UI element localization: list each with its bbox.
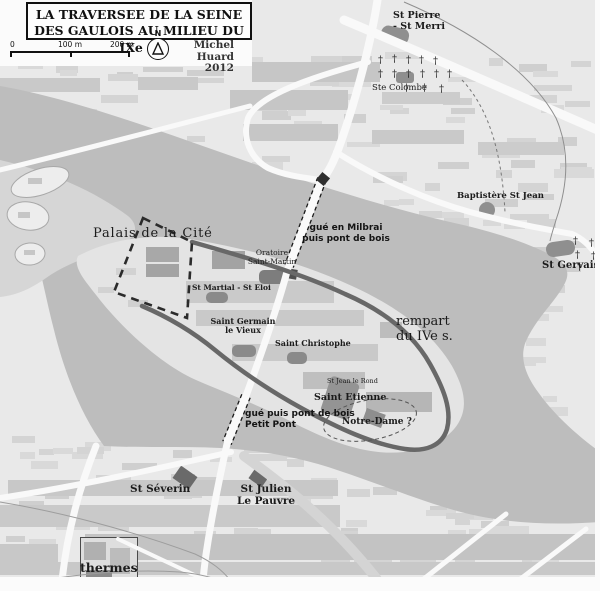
bottom-margin: [0, 577, 600, 591]
north-compass-icon: [147, 38, 169, 60]
label-thermes: thermes: [80, 561, 138, 576]
label-st-pierre-st-merri: St Pierre- St Merri: [393, 10, 445, 32]
map-labels: St Pierre- St MerriSte ColombeBaptistère…: [0, 0, 600, 591]
label-st-severin: St Séverin: [130, 483, 190, 495]
historical-map-paris-ixe-siecle: †††††††††††††††††††† St Pierre- St Merri…: [0, 0, 600, 591]
label-gue-en-milbrai: gué en Milbraipuis pont de bois: [302, 223, 390, 244]
label-saint-etienne: Saint Etienne: [314, 392, 386, 403]
scale-bar-tick: [128, 51, 130, 57]
label-baptistere-st-jean: Baptistère St Jean: [457, 191, 544, 201]
label-rempart-du-ive-s: rempartdu IVe s.: [396, 314, 453, 345]
author-credit: Michel Huard 2012: [170, 40, 234, 75]
label-st-jean-le-rond: St Jean le Rond: [327, 378, 378, 386]
label-st-julien-le-pauvre: St JulienLe Pauvre: [237, 483, 295, 508]
label-st-gervais: St Gervais: [542, 260, 599, 272]
scale-tick-0: 0: [10, 40, 15, 49]
north-arrow: N: [146, 29, 170, 60]
label-gue-petit-pont: gué puis pont de boisPetit Pont: [245, 409, 355, 430]
scale-tick-200: 200 m: [110, 40, 134, 49]
scale-bar-tick: [10, 51, 12, 57]
scale-bar-tick: [70, 51, 72, 57]
label-st-martial-st-eloi: St Martial - St Eloi: [192, 284, 271, 293]
author-year: 2012: [170, 63, 234, 75]
legend-panel: LA TRAVERSEE DE LA SEINE DES GAULOIS AU …: [0, 0, 252, 66]
scale-bar: 0 100 m 200 m: [10, 39, 130, 61]
map-title-box: LA TRAVERSEE DE LA SEINE DES GAULOIS AU …: [26, 2, 252, 40]
map-title-line1: LA TRAVERSEE DE LA SEINE: [28, 7, 250, 23]
label-saint-germain-le-vieux: Saint Germainle Vieux: [211, 317, 276, 336]
north-letter: N: [146, 29, 170, 38]
scale-tick-100: 100 m: [58, 40, 82, 49]
author-name: Michel Huard: [170, 40, 234, 63]
label-ste-colombe: Ste Colombe: [372, 83, 427, 93]
label-palais-de-la-cite: Palais de la Cité: [93, 226, 213, 241]
label-saint-christophe: Saint Christophe: [275, 339, 351, 348]
right-margin: [595, 0, 600, 591]
label-oratoire-saint-martin: OratoireSaint-Martin: [248, 249, 296, 267]
